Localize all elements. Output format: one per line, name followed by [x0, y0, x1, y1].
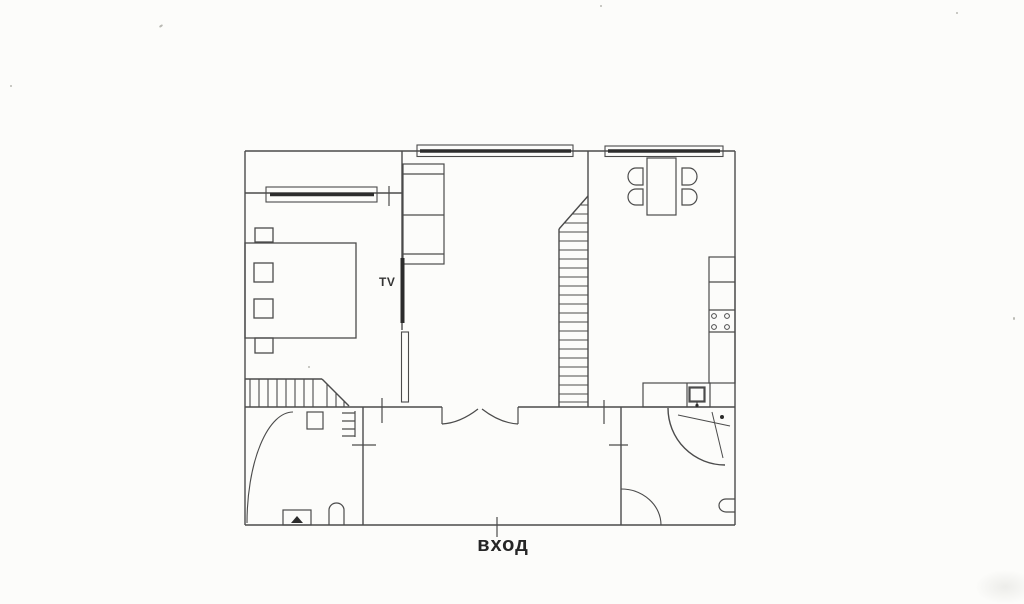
bathroom	[621, 408, 735, 525]
dining-chair	[628, 168, 643, 185]
wall-opening-ticks	[352, 186, 628, 537]
door-leaf-swing	[482, 409, 518, 424]
floor-plan-drawing	[0, 0, 1024, 600]
pillow-top	[254, 263, 273, 282]
scan-speck	[600, 5, 602, 7]
dining-chair	[628, 189, 643, 205]
bathroom-toilet	[719, 499, 735, 512]
bathroom-entry-door-swing	[621, 489, 661, 525]
nightstand-bottom	[255, 338, 273, 353]
kitchen-counter	[643, 257, 735, 407]
wc-door-swing	[247, 412, 293, 523]
dining-table	[647, 158, 676, 215]
living-room-window	[417, 145, 573, 157]
bed	[245, 243, 356, 338]
entry-double-door	[442, 407, 518, 424]
dining-set	[628, 158, 697, 215]
bed-group	[245, 228, 356, 353]
drain-dot	[720, 415, 724, 419]
wardrobe	[403, 164, 444, 264]
pillow-bottom	[254, 299, 273, 318]
entrance-label: вход	[468, 534, 538, 557]
tv-label: TV	[379, 275, 395, 289]
scan-speck	[308, 366, 310, 368]
wc-room	[247, 411, 355, 525]
wc-washbasin	[283, 510, 311, 525]
dining-chair	[682, 168, 697, 185]
stove-burners	[712, 314, 730, 330]
door-leaf-swing	[442, 409, 478, 424]
shower-line	[712, 412, 723, 458]
windows	[266, 145, 723, 202]
dining-chair	[682, 189, 697, 205]
stair-treads	[250, 379, 344, 407]
wc-radiator	[342, 411, 355, 437]
bedroom-window	[266, 187, 377, 202]
wc-toilet	[329, 503, 344, 525]
staircase-main	[559, 196, 588, 407]
stair-treads	[559, 205, 588, 402]
nightstand-top	[255, 228, 273, 242]
stair-cut-diagonal	[559, 196, 588, 229]
bedroom-door-leaf	[402, 332, 409, 402]
kitchen-window	[605, 146, 723, 157]
kitchen-sink	[690, 388, 705, 408]
counter-right-run	[709, 257, 735, 383]
staircase-lower	[245, 379, 349, 407]
bathroom-door-swing	[668, 408, 725, 465]
scan-speck	[1013, 317, 1015, 320]
wc-boiler	[307, 412, 323, 429]
scan-speck	[956, 12, 958, 14]
floor-plan-canvas: TV вход	[0, 0, 1024, 600]
scan-speck	[10, 85, 12, 87]
